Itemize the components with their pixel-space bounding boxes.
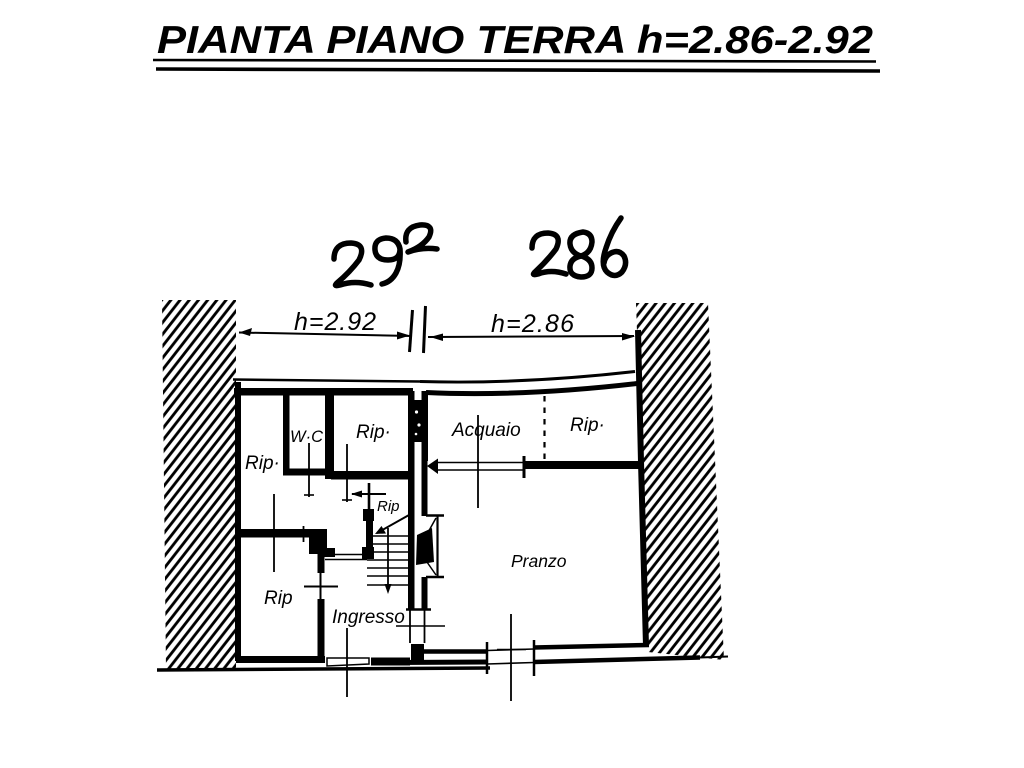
svg-text:Rip·: Rip· [356,422,391,443]
svg-text:Ingresso: Ingresso [332,607,405,628]
svg-text:h=2.86: h=2.86 [491,310,574,338]
svg-text:h=2.92: h=2.92 [294,308,376,336]
svg-text:Rip·: Rip· [570,415,605,436]
svg-text:Rip·: Rip· [245,453,280,474]
svg-text:Pranzo: Pranzo [511,551,567,571]
svg-text:PIANTA PIANO TERRA h=2.86-2.92: PIANTA PIANO TERRA h=2.86-2.92 [157,19,874,62]
svg-text:Rip: Rip [377,498,400,515]
svg-text:W·C: W·C [290,428,323,446]
svg-text:Acquaio: Acquaio [451,420,521,441]
svg-text:Rip: Rip [264,588,293,609]
